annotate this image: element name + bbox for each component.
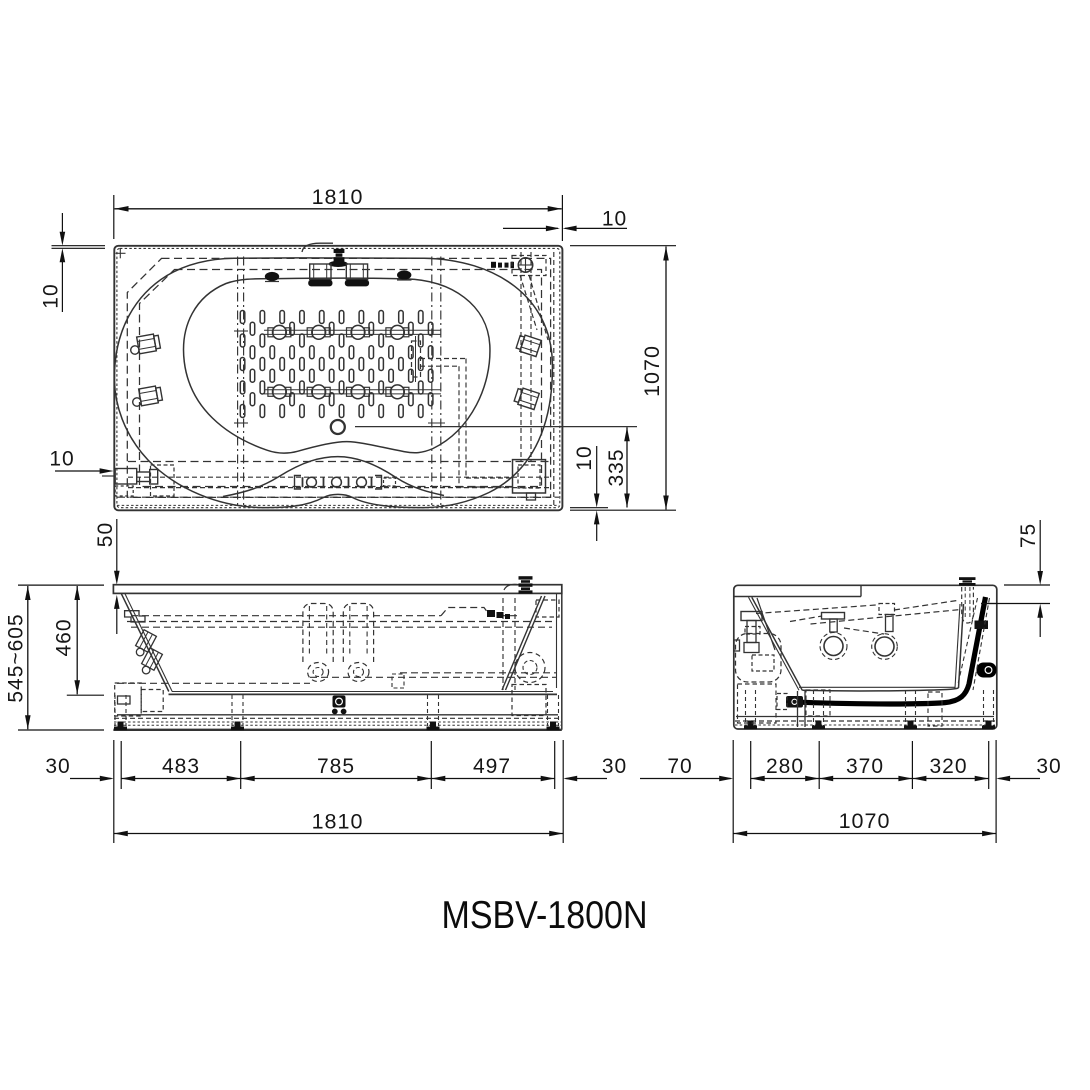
svg-text:1810: 1810 [312, 185, 364, 209]
svg-text:497: 497 [473, 755, 511, 778]
svg-text:483: 483 [162, 755, 200, 778]
svg-text:MSBV-1800N: MSBV-1800N [442, 894, 648, 937]
svg-text:75: 75 [1017, 523, 1040, 548]
svg-text:1810: 1810 [312, 810, 364, 834]
svg-text:785: 785 [317, 755, 355, 778]
svg-text:10: 10 [573, 445, 596, 470]
svg-text:30: 30 [602, 755, 627, 778]
svg-text:10: 10 [49, 448, 74, 471]
svg-text:370: 370 [846, 755, 884, 778]
svg-text:50: 50 [94, 522, 117, 547]
svg-text:320: 320 [929, 755, 967, 778]
svg-text:1070: 1070 [839, 809, 891, 833]
svg-text:30: 30 [1036, 755, 1061, 778]
svg-text:10: 10 [602, 207, 627, 230]
svg-text:70: 70 [667, 755, 692, 778]
svg-text:335: 335 [605, 448, 628, 486]
svg-text:10: 10 [40, 283, 63, 308]
svg-text:1070: 1070 [640, 345, 664, 397]
svg-text:280: 280 [766, 755, 804, 778]
svg-text:545~605: 545~605 [5, 613, 28, 702]
svg-text:30: 30 [45, 755, 70, 778]
svg-text:460: 460 [53, 618, 76, 656]
